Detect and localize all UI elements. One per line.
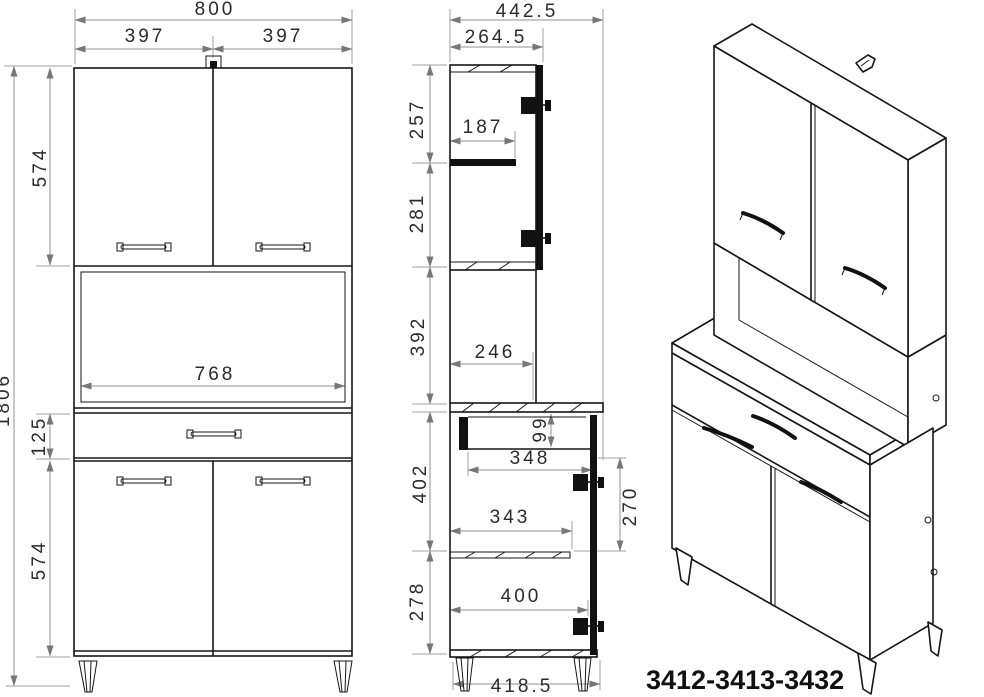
dimension-label-125: 125 [29,416,50,457]
upper-right-door-handle [260,245,305,249]
dimension-label-768: 768 [195,364,236,385]
model-number: 3412-3413-3432 [646,665,844,695]
dimension-label-278: 278 [407,581,428,622]
dimension-label-418.5: 418.5 [491,676,554,697]
base-side-3d [870,428,933,660]
dimension-label-246: 246 [475,342,516,363]
dimension-label-270: 270 [620,486,641,527]
perspective-view [672,24,946,694]
side-base-shelf [450,552,570,558]
front-view [4,9,352,692]
side-drawer [459,417,590,450]
dimension-label-397: 397 [125,26,166,47]
dimension-label-281: 281 [407,193,428,234]
drawer-handle [191,432,236,436]
dimension-label-442.5: 442.5 [496,1,559,22]
lower-left-door-handle [121,479,166,483]
dimension-label-187: 187 [463,117,504,138]
hutch-side-3d [908,138,946,357]
side-base-door [590,415,597,655]
dimension-label-257: 257 [407,99,428,140]
dimension-label-343: 343 [490,507,531,528]
dimension-label-574: 574 [30,147,51,188]
front-left-leg [79,661,97,692]
lower-right-door-handle [260,479,305,483]
dimension-label-800: 800 [195,0,236,20]
dimension-label-574: 574 [29,540,50,581]
dimension-label-400: 400 [501,586,542,607]
upper-left-door-handle [121,245,166,249]
dimension-label-348: 348 [510,448,551,469]
dimension-label-392: 392 [408,316,429,357]
front-dimension-lines [4,9,352,686]
dimension-label-397: 397 [263,26,304,47]
side-upper-shelf [450,159,516,166]
handle-cap [117,243,123,251]
technical-drawing-page: 8003973975741806768125574442.5264.525718… [0,0,984,697]
dimension-label-99: 99 [530,415,551,442]
cabinet-technical-drawing: 8003973975741806768125574442.5264.525718… [0,0,984,697]
front-right-leg [334,661,352,692]
side-upper-door [536,65,543,270]
dimension-label-402: 402 [410,463,431,504]
dimension-label-1806: 1806 [0,373,14,427]
front-legs [79,661,352,692]
dimension-label-264.5: 264.5 [465,27,528,48]
wall-bracket-3d [856,55,875,72]
